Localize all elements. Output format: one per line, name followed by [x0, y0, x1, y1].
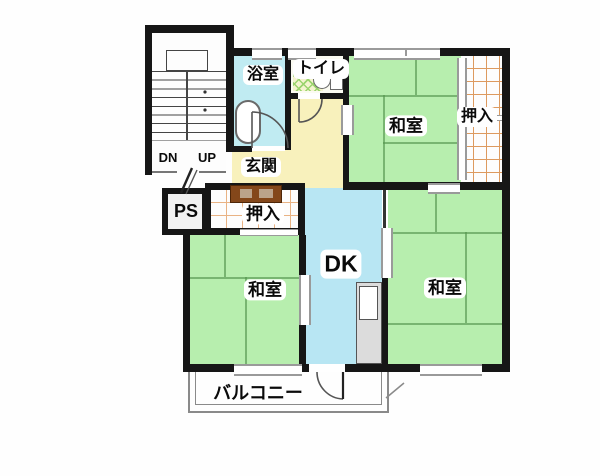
label-stairs-up: UP	[194, 150, 220, 166]
label-bathroom: 浴室	[243, 65, 283, 85]
label-oshiire-middle: 押入	[242, 203, 284, 224]
label-toilet: トイレ	[293, 59, 349, 79]
label-dk: DK	[320, 250, 361, 279]
label-genkan: 玄関	[241, 157, 281, 177]
label-oshiire-northeast: 押入	[457, 107, 497, 127]
label-washitsu-southwest: 和室	[244, 279, 286, 300]
floor-plan: 浴室 トイレ 和室 押入 玄関 DN UP PS 押入 DK 和室 和室 バルコ…	[0, 0, 600, 476]
label-ps: PS	[170, 200, 202, 223]
label-washitsu-northeast: 和室	[385, 115, 427, 136]
label-balcony: バルコニー	[209, 382, 307, 405]
label-washitsu-southeast: 和室	[424, 277, 466, 298]
label-stairs-dn: DN	[155, 150, 182, 166]
